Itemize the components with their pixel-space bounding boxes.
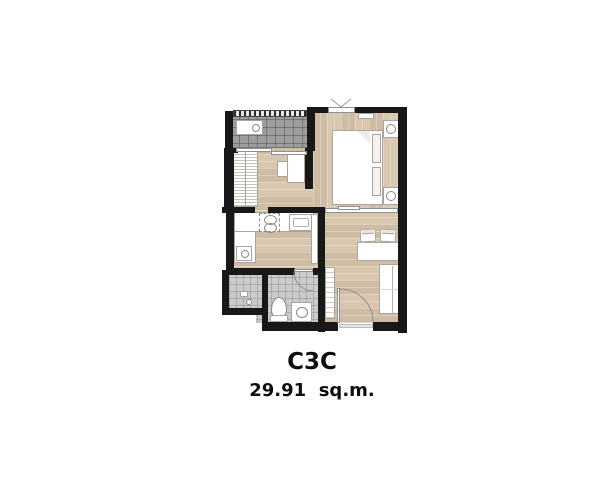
wall <box>373 322 407 331</box>
balcony-sliding-door-panel <box>271 151 307 155</box>
basin-icon <box>296 307 308 318</box>
unit-area: 29.91 sq.m. <box>212 378 412 404</box>
shower-head-icon <box>246 299 252 305</box>
pillow <box>372 134 381 163</box>
blanket-fold <box>357 131 370 144</box>
bathroom-door-leaf <box>294 269 313 272</box>
sofa <box>379 264 399 314</box>
lamp-icon <box>386 124 396 134</box>
wall <box>318 207 325 332</box>
wall <box>224 148 234 207</box>
floor-plan-page: C3C 29.91 sq.m. <box>0 0 616 480</box>
dining-chair <box>360 229 377 243</box>
wall <box>307 107 328 113</box>
pillow <box>372 167 381 196</box>
wall <box>268 207 318 213</box>
vanity-basin <box>291 302 312 322</box>
burner-icon <box>264 223 277 233</box>
wall <box>355 107 398 113</box>
wall <box>398 107 407 333</box>
dining-chair <box>380 229 397 243</box>
bedroom-glass-partition <box>325 208 398 213</box>
wall <box>262 275 268 309</box>
wall <box>225 111 233 151</box>
dining-table <box>357 242 399 261</box>
washer-door-icon <box>241 250 249 258</box>
exterior-patch <box>222 315 256 323</box>
bedroom-window <box>328 107 355 113</box>
unit-label: C3C 29.91 sq.m. <box>212 349 412 404</box>
window-mark-icon <box>331 99 351 107</box>
ac-fan-icon <box>252 124 260 132</box>
nightstand <box>383 120 399 138</box>
entrance-door-leaf <box>337 288 340 323</box>
balcony-sliding-door-panel <box>236 148 272 152</box>
stove <box>259 213 280 232</box>
wardrobe <box>232 151 258 207</box>
sink-basin <box>293 218 309 227</box>
lamp-icon <box>386 191 396 201</box>
wall <box>307 111 315 151</box>
tv-console <box>325 267 335 319</box>
entrance-threshold <box>339 324 373 328</box>
desk-chair <box>277 161 288 177</box>
wall <box>226 213 234 270</box>
bedroom-sliding-door-panel <box>338 206 360 210</box>
toilet-tank <box>270 315 288 322</box>
desk <box>287 153 305 183</box>
wall <box>262 322 338 331</box>
washing-machine <box>236 246 252 261</box>
unit-name: C3C <box>212 349 412 375</box>
chair-back <box>382 230 394 235</box>
wall <box>313 268 318 275</box>
sofa-cushion-divider <box>381 289 399 290</box>
sofa-backrest <box>392 266 393 314</box>
balcony-railing <box>233 110 307 117</box>
wardrobe-divider <box>245 152 246 206</box>
nightstand <box>383 187 399 205</box>
ac-indoor-unit <box>358 113 374 119</box>
wall <box>228 268 295 275</box>
shower-drain-icon <box>240 291 248 297</box>
chair-back <box>362 230 374 235</box>
tall-cabinet <box>311 214 318 264</box>
ac-condenser-unit <box>236 120 263 135</box>
kitchen-sink <box>289 214 313 231</box>
